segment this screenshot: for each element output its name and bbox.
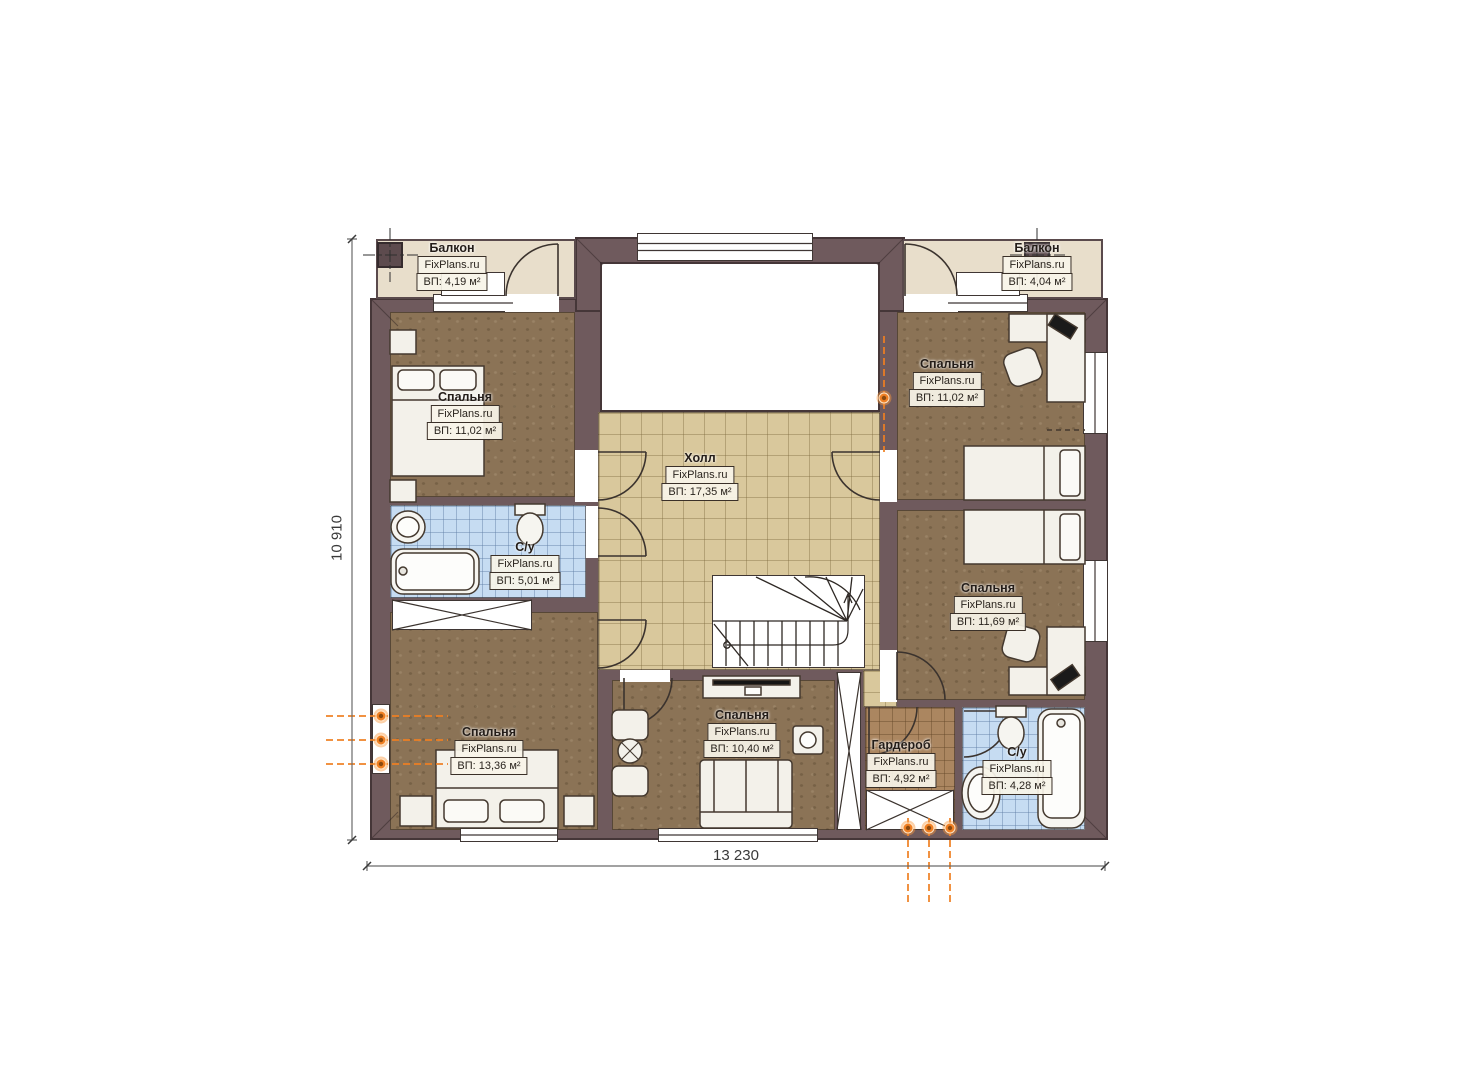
room-name: Спальня	[715, 708, 769, 722]
column-marker-left	[377, 242, 403, 268]
watermark-box: FixPlans.ru	[490, 555, 559, 573]
area-box: ВП: 5,01 м²	[489, 572, 560, 590]
window-balcony-left	[433, 294, 513, 312]
dimension-width-label: 13 230	[713, 847, 759, 864]
door-opening-bedroom-top-left	[575, 450, 598, 502]
room-label-hall: Холл FixPlans.ru ВП: 17,35 м²	[661, 451, 738, 501]
window-balcony-right	[948, 294, 1028, 312]
closet-shaft	[837, 672, 861, 830]
room-name: Спальня	[961, 581, 1015, 595]
area-box: ВП: 11,02 м²	[427, 422, 503, 440]
door-opening-bedroom-right	[880, 650, 897, 702]
room-name: С/у	[515, 540, 534, 554]
room-label-balcony-right: Балкон FixPlans.ru ВП: 4,04 м²	[1001, 241, 1072, 291]
window-top-large	[637, 233, 813, 261]
room-label-wardrobe: Гардероб FixPlans.ru ВП: 4,92 м²	[865, 738, 936, 788]
watermark-box: FixPlans.ru	[866, 753, 935, 771]
room-name: Спальня	[920, 357, 974, 371]
room-label-bathroom-left: С/у FixPlans.ru ВП: 5,01 м²	[489, 540, 560, 590]
area-box: ВП: 4,28 м²	[981, 777, 1052, 795]
watermark-box: FixPlans.ru	[1002, 256, 1071, 274]
area-box: ВП: 11,02 м²	[909, 389, 985, 407]
closet-bottom-left	[392, 600, 532, 630]
room-label-bedroom-bottom-left: Спальня FixPlans.ru ВП: 13,36 м²	[450, 725, 527, 775]
room-floor-bedroom-bottom-left	[390, 612, 598, 830]
door-opening-bathroom-left	[586, 506, 598, 558]
watermark-box: FixPlans.ru	[417, 256, 486, 274]
room-label-balcony-left: Балкон FixPlans.ru ВП: 4,19 м²	[416, 241, 487, 291]
area-box: ВП: 4,92 м²	[865, 770, 936, 788]
window-bottom-mid	[658, 828, 818, 842]
room-name: Гардероб	[871, 738, 930, 752]
floor-plan-canvas: Балкон FixPlans.ru ВП: 4,19 м² Балкон Fi…	[0, 0, 1473, 1080]
radiator-niche-left	[372, 704, 390, 774]
room-label-bedroom-top-right: Спальня FixPlans.ru ВП: 11,02 м²	[909, 357, 985, 407]
door-opening-bedroom-bottom-mid	[620, 670, 670, 682]
watermark-box: FixPlans.ru	[707, 723, 776, 741]
closet-wardrobe	[866, 790, 954, 830]
door-opening-balcony-right	[904, 294, 958, 312]
room-label-bedroom-bottom-mid: Спальня FixPlans.ru ВП: 10,40 м²	[703, 708, 780, 758]
window-right-mid	[1083, 560, 1108, 642]
watermark-box: FixPlans.ru	[454, 740, 523, 758]
room-name: Балкон	[1014, 241, 1059, 255]
room-name: Спальня	[462, 725, 516, 739]
area-box: ВП: 4,04 м²	[1001, 273, 1072, 291]
dimension-height-label: 10 910	[329, 515, 346, 561]
watermark-box: FixPlans.ru	[953, 596, 1022, 614]
room-label-bathroom-right: С/у FixPlans.ru ВП: 4,28 м²	[981, 745, 1052, 795]
area-box: ВП: 4,19 м²	[416, 273, 487, 291]
stair-void	[712, 575, 865, 668]
room-name: Балкон	[429, 241, 474, 255]
room-label-bedroom-right: Спальня FixPlans.ru ВП: 11,69 м²	[950, 581, 1026, 631]
watermark-box: FixPlans.ru	[665, 466, 734, 484]
door-opening-bedroom-top-right	[880, 450, 897, 502]
window-right-top	[1083, 352, 1108, 434]
area-box: ВП: 10,40 м²	[703, 740, 780, 758]
watermark-box: FixPlans.ru	[912, 372, 981, 390]
window-bottom-left	[460, 828, 558, 842]
area-box: ВП: 17,35 м²	[661, 483, 738, 501]
room-name: С/у	[1007, 745, 1026, 759]
room-label-bedroom-top-left: Спальня FixPlans.ru ВП: 11,02 м²	[427, 390, 503, 440]
watermark-box: FixPlans.ru	[982, 760, 1051, 778]
area-box: ВП: 13,36 м²	[450, 757, 527, 775]
double-height-void	[600, 262, 880, 412]
area-box: ВП: 11,69 м²	[950, 613, 1026, 631]
door-opening-balcony-left	[505, 294, 559, 312]
room-name: Спальня	[438, 390, 492, 404]
room-name: Холл	[684, 451, 715, 465]
watermark-box: FixPlans.ru	[430, 405, 499, 423]
